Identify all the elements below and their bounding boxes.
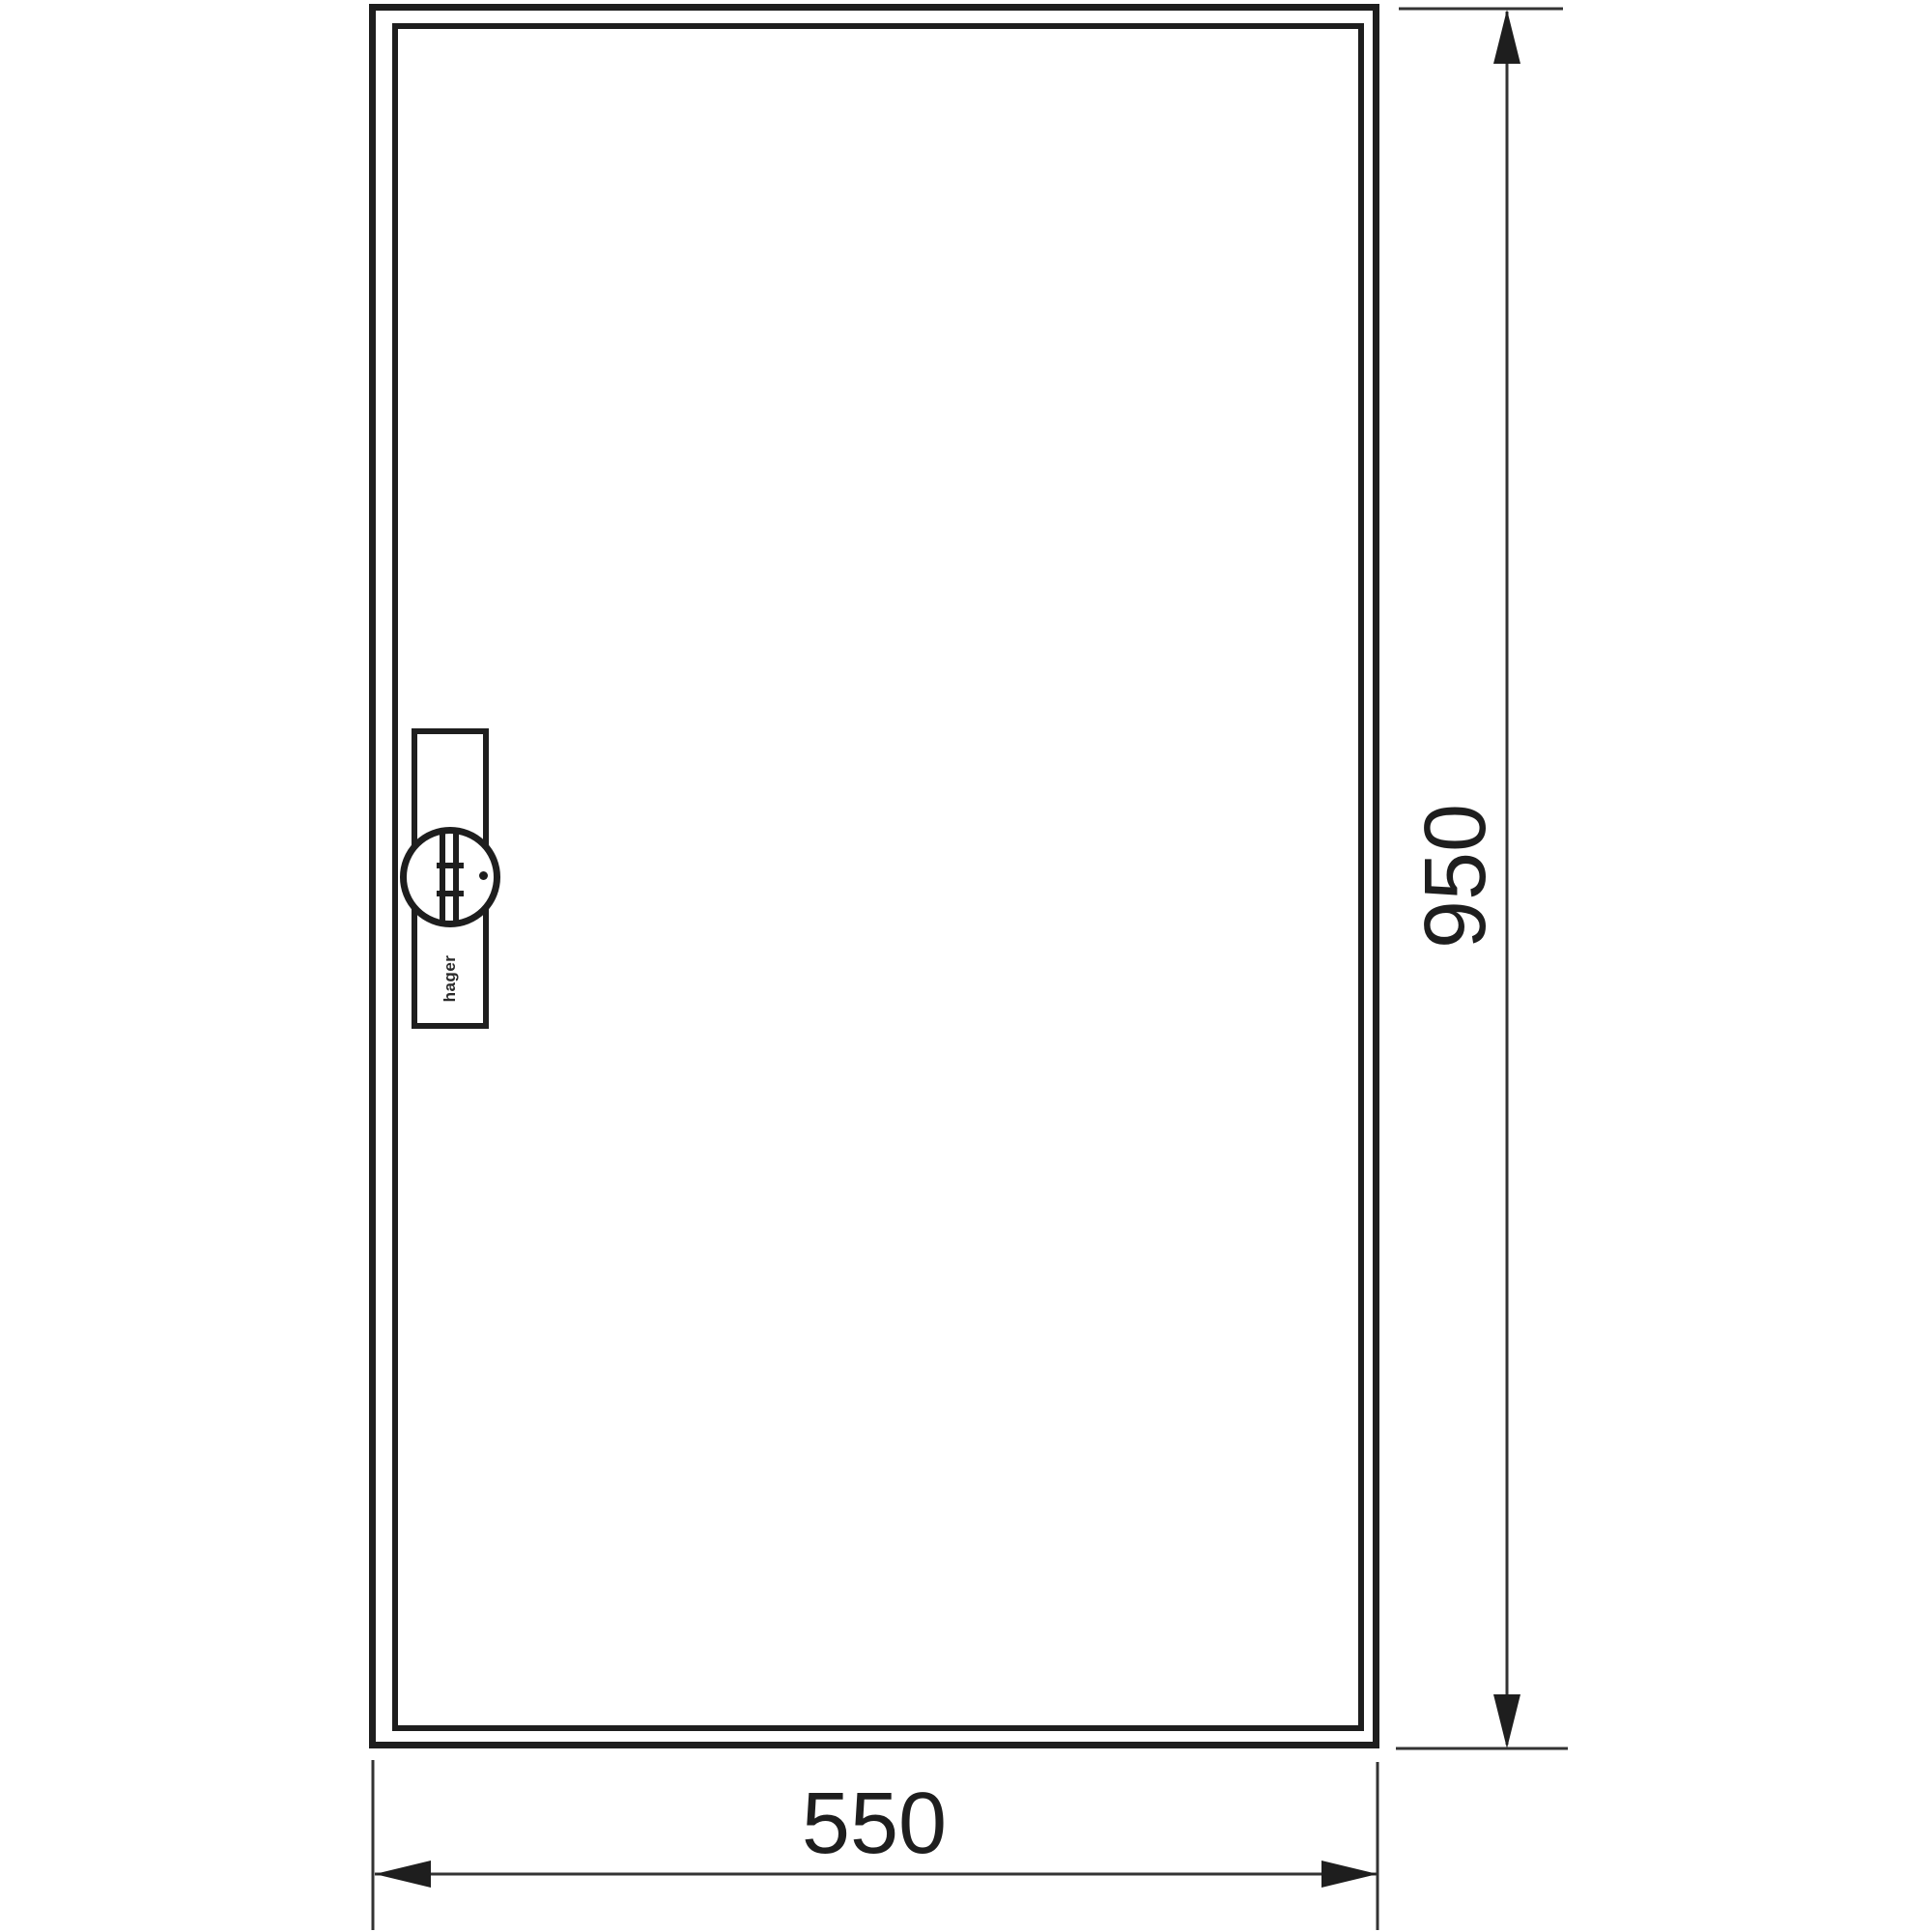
enclosure-door-panel <box>392 23 1364 1731</box>
height-arrow-down <box>1493 1694 1520 1748</box>
lock-keyway-rail-left <box>440 833 445 922</box>
lock-keyway-crossbar-bottom <box>437 891 464 896</box>
dimension-height-label: 950 <box>1407 780 1504 973</box>
width-arrow-left <box>375 1861 431 1888</box>
lock-detent-dot <box>479 871 488 880</box>
lock-keyway-rail-right <box>453 833 459 922</box>
height-arrow-up <box>1493 10 1520 64</box>
lock-brand-label: hager <box>436 921 465 1037</box>
lock-keyway-crossbar-top <box>437 863 464 868</box>
dimension-width-label: 550 <box>778 1776 971 1872</box>
technical-drawing-canvas: hager 950 550 <box>0 0 1932 1932</box>
width-arrow-right <box>1321 1861 1378 1888</box>
